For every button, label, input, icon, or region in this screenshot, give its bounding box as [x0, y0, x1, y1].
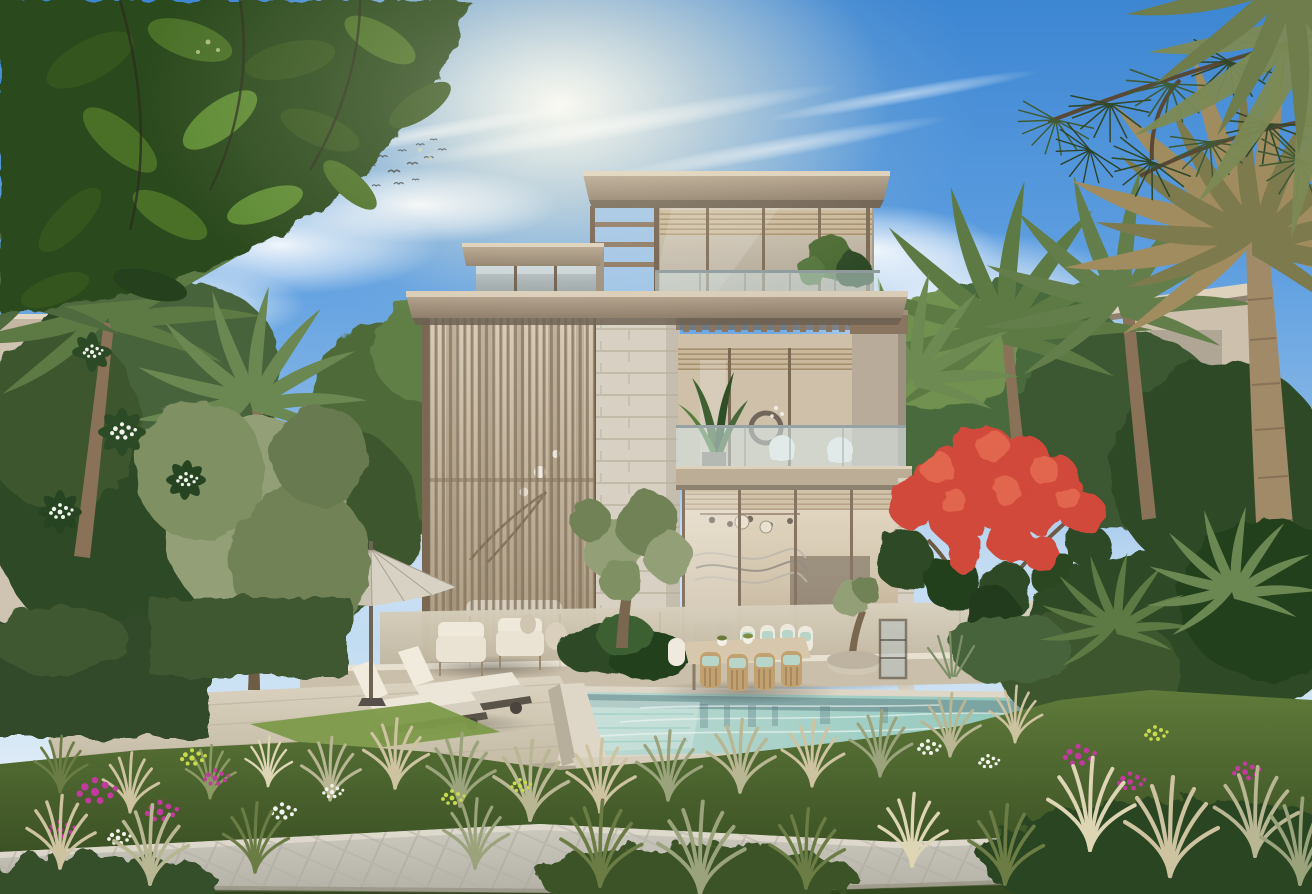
architectural-rendering: Modern three-storey villa with landscape…	[0, 0, 1312, 894]
glass-lantern	[880, 620, 906, 678]
rendering-canvas: Modern three-storey villa with landscape…	[0, 0, 1312, 894]
floor-slab	[676, 468, 912, 485]
second-floor-terrace	[676, 310, 912, 490]
balcony-balustrade	[676, 427, 906, 467]
